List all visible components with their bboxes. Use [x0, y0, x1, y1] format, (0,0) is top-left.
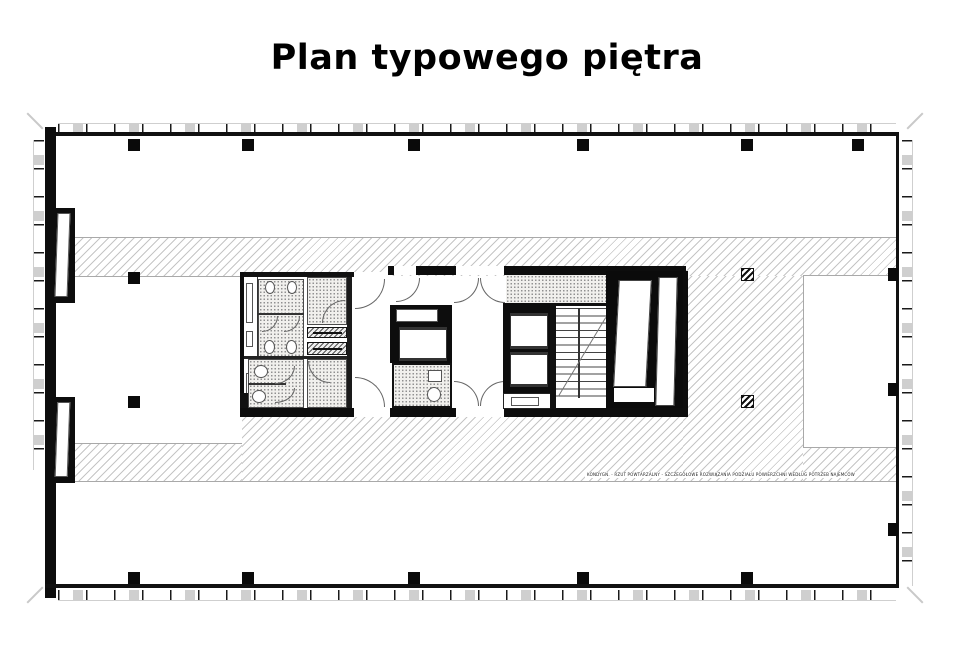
closet [503, 393, 553, 409]
corner-mark [907, 113, 924, 130]
zone-outline [803, 275, 804, 448]
zone-outline [803, 275, 897, 276]
duct-bar [313, 348, 342, 350]
page-title: Plan typowego piętra [0, 38, 974, 78]
column [577, 572, 589, 584]
wall-left [45, 127, 56, 598]
elevator-car [399, 327, 447, 361]
shaft-panel [655, 277, 677, 406]
window-mullions-left [33, 140, 44, 470]
zone-outline [74, 481, 897, 482]
elevator-shaft [503, 303, 553, 393]
zone-outline [803, 447, 897, 448]
elevator-car [510, 352, 548, 387]
toilet-icon [254, 365, 268, 378]
column [888, 523, 898, 536]
wc-room-accessible [392, 363, 452, 408]
cabinet-panel [55, 213, 71, 297]
counterweight [396, 309, 438, 322]
column [242, 139, 254, 151]
stall-partition [258, 313, 304, 315]
core-corridor [506, 275, 612, 306]
toilet-icon [286, 340, 297, 354]
toilet-icon [252, 390, 266, 403]
duct [307, 327, 347, 338]
core-wall [683, 271, 688, 409]
stair-stringer [578, 308, 580, 398]
cabinet-panel [511, 397, 539, 406]
column [128, 272, 140, 284]
cabinet-panel [55, 402, 71, 477]
shaft-panel [613, 280, 652, 387]
corner-mark [27, 113, 44, 130]
window-mullions-right [902, 140, 913, 586]
wall-cabinet [52, 397, 75, 483]
column [852, 139, 864, 151]
door-opening [456, 266, 504, 275]
annotation-text: KONDYGN. - RZUT POWTARZALNY - SZCZEGÓŁOW… [585, 472, 857, 478]
urinal-icon [265, 281, 275, 294]
wall-bottom [45, 584, 899, 588]
column [577, 139, 589, 151]
corner-mark [27, 587, 44, 604]
column-hatched [741, 395, 754, 408]
toilet-icon [264, 340, 275, 354]
zone-outline [74, 443, 242, 444]
hatched-zone [74, 443, 242, 482]
elevator-shaft [390, 305, 452, 363]
sink-icon [428, 370, 442, 382]
column [888, 383, 898, 396]
door-opening [456, 408, 504, 417]
wall-top [45, 132, 899, 136]
page: Plan typowego piętra [0, 0, 974, 659]
elevator-car [510, 313, 548, 349]
door-opening [354, 408, 390, 417]
column [741, 572, 753, 584]
column [128, 139, 140, 151]
toilet-icon [427, 387, 441, 402]
column-hatched [741, 268, 754, 281]
shaft-panel [614, 388, 654, 402]
riser-shaft [606, 271, 684, 408]
stair-wall [552, 303, 608, 306]
column [408, 139, 420, 151]
cabinet-panel [246, 283, 253, 323]
zone-outline [74, 237, 897, 238]
column [888, 268, 898, 281]
urinal-icon [287, 281, 297, 294]
door-opening [394, 266, 416, 275]
wall-cabinet [52, 208, 75, 303]
cabinet-panel [246, 331, 253, 347]
wall-right [896, 133, 899, 588]
column [741, 139, 753, 151]
hatched-zone [683, 276, 803, 482]
zone-outline [74, 276, 242, 277]
corner-mark [907, 587, 924, 604]
column [408, 572, 420, 584]
column [128, 396, 140, 408]
duct [307, 342, 347, 355]
column [128, 572, 140, 584]
window-mullions-bottom [58, 590, 896, 601]
column [242, 572, 254, 584]
duct-bar [313, 332, 342, 334]
